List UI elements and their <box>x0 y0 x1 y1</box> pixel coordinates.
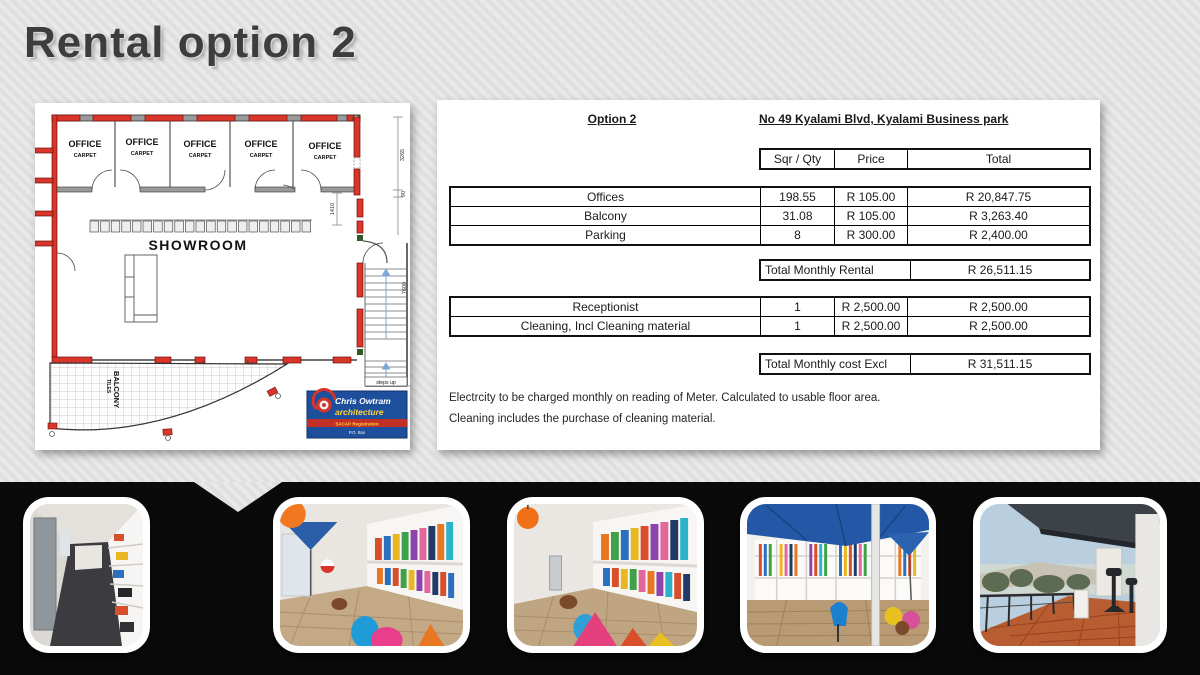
svg-text:Chris Owtram: Chris Owtram <box>335 396 391 406</box>
cost-total-row: Total Monthly cost Excl R 31,511.15 <box>759 353 1091 375</box>
svg-text:OFFICE: OFFICE <box>69 139 102 149</box>
floor-plan-panel: OFFICE CARPET OFFICE CARPET OFFICE CARPE… <box>35 103 410 450</box>
svg-text:TILES: TILES <box>105 379 111 394</box>
balcony-image <box>980 504 1160 646</box>
table-row: Receptionist 1 R 2,500.00 R 2,500.00 <box>451 298 1089 316</box>
rental-total-value: R 26,511.15 <box>910 261 1089 279</box>
table-row: Cleaning, Incl Cleaning material 1 R 2,5… <box>451 316 1089 335</box>
svg-text:CARPET: CARPET <box>250 153 273 159</box>
services-table: Receptionist 1 R 2,500.00 R 2,500.00 Cle… <box>449 296 1091 337</box>
svg-text:7600: 7600 <box>402 282 408 294</box>
option-label: Option 2 <box>557 112 667 126</box>
table-row: Parking 8 R 300.00 R 2,400.00 <box>451 225 1089 244</box>
svg-text:CARPET: CARPET <box>189 153 212 159</box>
rental-total-row: Total Monthly Rental R 26,511.15 <box>759 259 1091 281</box>
svg-text:1410: 1410 <box>330 203 336 215</box>
photo-corridor <box>23 497 150 653</box>
architect-logo: Chris Owtram architecture SACAP Registra… <box>307 390 407 438</box>
svg-text:OFFICE: OFFICE <box>184 139 217 149</box>
photo-showroom-2 <box>507 497 704 653</box>
table-row: Balcony 31.08 R 105.00 R 3,263.40 <box>451 206 1089 225</box>
svg-text:CARPET: CARPET <box>314 155 337 161</box>
page-title: Rental option 2 <box>24 18 357 68</box>
svg-text:90: 90 <box>401 191 407 197</box>
photo-showroom-3 <box>740 497 936 653</box>
showroom-image-2 <box>514 504 697 646</box>
note-cleaning: Cleaning includes the purchase of cleani… <box>449 413 716 425</box>
note-electricity: Electrcity to be charged monthly on read… <box>449 392 881 404</box>
showroom-image-1 <box>280 504 463 646</box>
showroom-image-3 <box>747 504 929 646</box>
cost-total-value: R 31,511.15 <box>910 355 1089 373</box>
svg-text:BALCONY: BALCONY <box>112 371 121 408</box>
svg-text:SHOWROOM: SHOWROOM <box>148 237 247 253</box>
svg-text:CARPET: CARPET <box>131 151 154 157</box>
floor-plan-drawing: OFFICE CARPET OFFICE CARPET OFFICE CARPE… <box>35 103 410 450</box>
svg-text:CARPET: CARPET <box>74 153 97 159</box>
table-row: Offices 198.55 R 105.00 R 20,847.75 <box>451 188 1089 206</box>
svg-text:SACAP Registration: SACAP Registration <box>335 422 378 427</box>
svg-text:OFFICE: OFFICE <box>126 137 159 147</box>
cost-total-label: Total Monthly cost Excl <box>761 355 910 373</box>
svg-text:steps up: steps up <box>376 380 396 386</box>
svg-text:OFFICE: OFFICE <box>309 141 342 151</box>
col-header-price: Price <box>834 150 907 168</box>
slide: Rental option 2 <box>0 0 1200 675</box>
column-header-table: Sqr / Qty Price Total <box>759 148 1091 170</box>
address-label: No 49 Kyalami Blvd, Kyalami Business par… <box>759 112 1008 126</box>
svg-text:3265: 3265 <box>400 149 406 161</box>
corridor-image <box>30 504 143 646</box>
photo-showroom-1 <box>273 497 470 653</box>
photo-balcony <box>973 497 1167 653</box>
pricing-panel: Option 2 No 49 Kyalami Blvd, Kyalami Bus… <box>437 100 1100 450</box>
svg-text:P.O. Box: P.O. Box <box>349 430 366 435</box>
col-header-qty: Sqr / Qty <box>761 150 834 168</box>
rental-total-label: Total Monthly Rental <box>761 261 910 279</box>
col-header-total: Total <box>907 150 1089 168</box>
svg-text:architecture: architecture <box>335 407 384 417</box>
svg-text:OFFICE: OFFICE <box>245 139 278 149</box>
rental-items-table: Offices 198.55 R 105.00 R 20,847.75 Balc… <box>449 186 1091 246</box>
